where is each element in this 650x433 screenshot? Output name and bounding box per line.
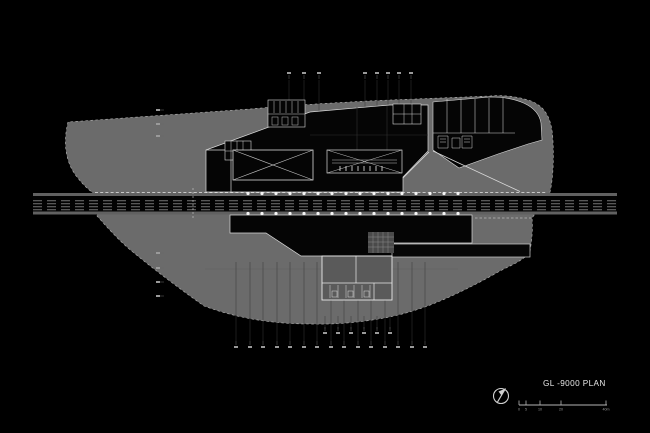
column-dot xyxy=(442,212,445,215)
scale-bar: 05102040m xyxy=(518,401,610,412)
column-dot xyxy=(302,192,305,195)
column-dot xyxy=(302,212,305,215)
scale-label: 40m xyxy=(603,408,610,412)
column-dot xyxy=(330,192,333,195)
column-dot xyxy=(274,212,277,215)
restroom-box xyxy=(268,100,305,127)
column-dot xyxy=(400,212,403,215)
scale-label: 20 xyxy=(559,408,563,412)
site-plan-drawing: GL -9000 PLAN 05102040m xyxy=(0,0,650,433)
grid-mark-bottom_b xyxy=(423,346,427,348)
scale-label: 0 xyxy=(518,408,520,412)
escalator-hatch xyxy=(368,232,394,253)
scale-label: 5 xyxy=(525,408,527,412)
grid-mark-bottom_a xyxy=(388,332,392,334)
grid-mark-bottom_b xyxy=(329,346,333,348)
column-dot xyxy=(414,192,417,195)
grid-mark-left_upper xyxy=(156,109,160,111)
column-dot xyxy=(428,212,431,215)
grid-mark-left_lower xyxy=(156,295,160,297)
column-dot xyxy=(358,212,361,215)
column-dot xyxy=(358,192,361,195)
grid-mark-bottom_b xyxy=(356,346,360,348)
column-dot xyxy=(330,212,333,215)
grid-mark-bottom_a xyxy=(336,332,340,334)
column-dot xyxy=(316,212,319,215)
title-block: GL -9000 PLAN 05102040m xyxy=(494,379,610,412)
grid-mark-bottom_b xyxy=(248,346,252,348)
grid-mark-bottom_a xyxy=(349,332,353,334)
grid-mark-top_b xyxy=(409,72,413,74)
column-dot xyxy=(260,212,263,215)
grid-mark-top_a xyxy=(287,72,291,74)
grid-mark-bottom_b xyxy=(275,346,279,348)
grid-mark-top_b xyxy=(375,72,379,74)
grid-mark-bottom_b xyxy=(302,346,306,348)
lower-service-building xyxy=(322,256,392,300)
column-dot xyxy=(274,192,277,195)
column-dot xyxy=(344,192,347,195)
grid-mark-left_upper xyxy=(156,135,160,137)
column-dot xyxy=(428,192,431,195)
room-cluster-northeast xyxy=(393,104,421,124)
site-plan-page: GL -9000 PLAN 05102040m xyxy=(0,0,650,433)
grid-mark-bottom_b xyxy=(383,346,387,348)
column-dot xyxy=(400,192,403,195)
grid-mark-bottom_b xyxy=(342,346,346,348)
north-arrow-icon xyxy=(494,389,509,404)
rail-strip-bottom xyxy=(33,212,617,215)
column-dot xyxy=(316,192,319,195)
column-dot xyxy=(372,192,375,195)
grid-mark-top_b xyxy=(386,72,390,74)
column-dot xyxy=(414,212,417,215)
rail-strip-top xyxy=(33,193,617,196)
grid-mark-top_a xyxy=(302,72,306,74)
grid-mark-bottom_b xyxy=(315,346,319,348)
restroom-cluster-north xyxy=(268,100,305,127)
grid-mark-bottom_b xyxy=(410,346,414,348)
grid-mark-bottom_a xyxy=(362,332,366,334)
grid-mark-bottom_b xyxy=(234,346,238,348)
column-dot xyxy=(386,192,389,195)
column-dot xyxy=(246,212,249,215)
grid-mark-top_b xyxy=(363,72,367,74)
lower-platform-bar xyxy=(392,244,530,257)
column-dot xyxy=(372,212,375,215)
grid-mark-bottom_b xyxy=(261,346,265,348)
column-dot xyxy=(386,212,389,215)
column-dot xyxy=(456,212,459,215)
grid-mark-top_b xyxy=(397,72,401,74)
column-dot xyxy=(288,192,291,195)
grid-mark-left_lower xyxy=(156,281,160,283)
grid-mark-bottom_a xyxy=(323,332,327,334)
grid-mark-left_lower xyxy=(156,267,160,269)
column-dot xyxy=(344,212,347,215)
grid-mark-left_upper xyxy=(156,123,160,125)
grid-mark-left_lower xyxy=(156,252,160,254)
grid-mark-top_a xyxy=(317,72,321,74)
column-dot xyxy=(260,192,263,195)
column-dot xyxy=(288,212,291,215)
grid-mark-bottom_a xyxy=(375,332,379,334)
column-dot xyxy=(442,192,445,195)
column-dot xyxy=(456,192,459,195)
scale-label: 10 xyxy=(538,408,542,412)
column-dot xyxy=(246,192,249,195)
service-building-box xyxy=(322,256,392,300)
grid-mark-bottom_b xyxy=(396,346,400,348)
grid-mark-bottom_b xyxy=(369,346,373,348)
plan-title: GL -9000 PLAN xyxy=(543,379,606,388)
grid-mark-bottom_b xyxy=(288,346,292,348)
